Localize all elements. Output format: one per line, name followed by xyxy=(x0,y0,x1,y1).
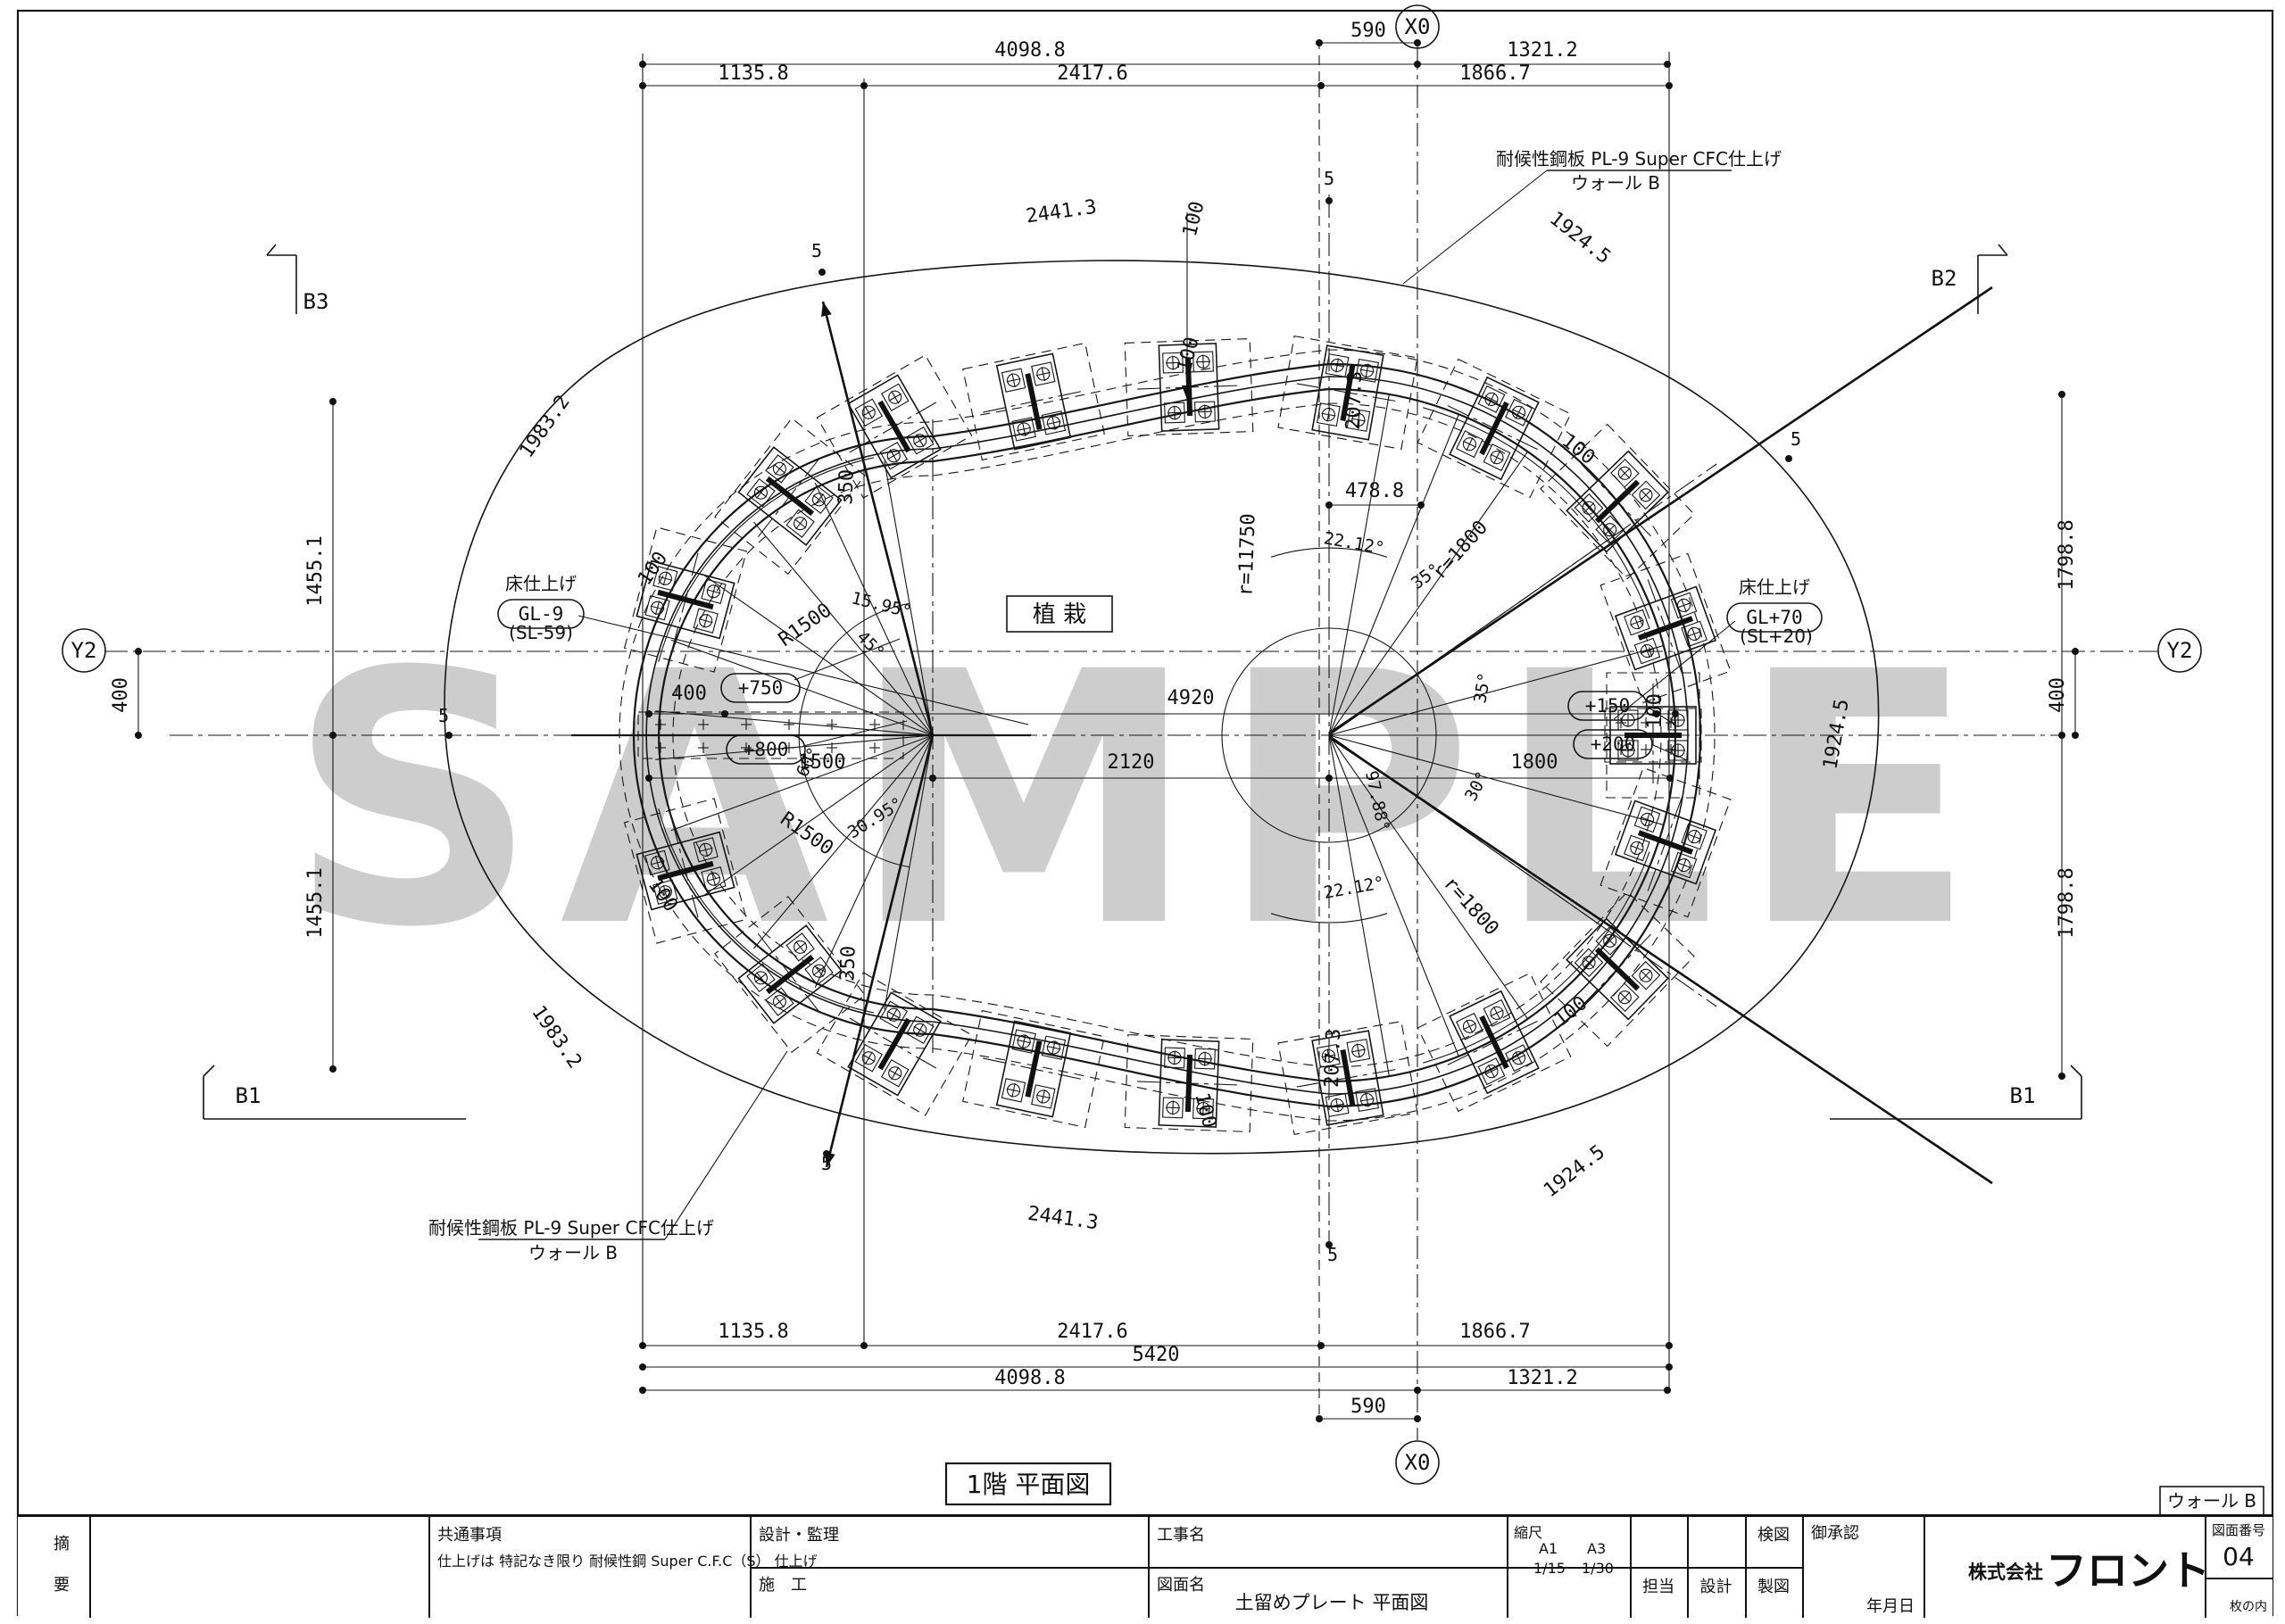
dim-label: 100 xyxy=(1179,199,1209,239)
tb-scale-a1: A1 xyxy=(1539,1540,1558,1557)
dim-tick xyxy=(1414,61,1421,68)
dim-tick xyxy=(1325,775,1333,782)
drawing-sheet: SAMPLE 植 栽 1階 平面図 ウォール B 耐候性鋼板 PL-9 Supe… xyxy=(0,0,2285,1624)
grid-bubble-label: X0 xyxy=(1405,1450,1431,1475)
drawing-line xyxy=(1403,170,1547,284)
svg-text:ウォール B: ウォール B xyxy=(2167,1490,2256,1512)
drawing-title-label: 1階 平面図 xyxy=(946,1463,1110,1504)
dim-tick xyxy=(2072,732,2079,739)
dim-tick xyxy=(639,1387,646,1394)
tb-approval-label: 御承認 xyxy=(1811,1520,1859,1544)
tb-common-title: 共通事項 xyxy=(437,1522,502,1545)
svg-text:耐候性鋼板 PL-9 Super CFC仕上げ: 耐候性鋼板 PL-9 Super CFC仕上げ xyxy=(428,1217,714,1239)
wall-tag-label: ウォール B xyxy=(2160,1487,2264,1515)
dim-tick xyxy=(2058,391,2065,398)
dim-tick xyxy=(2072,648,2079,655)
svg-text:1階 平面図: 1階 平面図 xyxy=(967,1470,1091,1499)
svg-text:ウォール B: ウォール B xyxy=(1571,172,1660,194)
drawing-line xyxy=(1998,244,2007,255)
dim-tick xyxy=(1666,82,1673,89)
cad-drawing-canvas: SAMPLE 植 栽 1階 平面図 ウォール B 耐候性鋼板 PL-9 Supe… xyxy=(0,0,2285,1624)
dim-label: 207.3 xyxy=(1342,370,1367,430)
dim-tick xyxy=(1316,39,1323,46)
tb-design-label: 設計・監理 xyxy=(759,1522,839,1545)
section-marker-label: B1 xyxy=(236,1083,262,1108)
level-value: +150 xyxy=(1585,695,1631,717)
dim-tick xyxy=(645,710,652,717)
dim-tick xyxy=(329,1065,337,1073)
dim-label: 350 xyxy=(835,468,858,505)
retaining-plate xyxy=(1417,360,1570,498)
dim-label: 400 xyxy=(110,677,132,713)
dim-tick xyxy=(929,775,936,782)
section-marker-label: B1 xyxy=(2010,1083,2036,1108)
dim-label: r=11750 xyxy=(1234,513,1259,597)
dim-label: 1983.2 xyxy=(516,392,575,462)
dim-tick xyxy=(2058,1073,2065,1080)
level-value: GL-9 xyxy=(519,603,564,625)
dim-tick xyxy=(1664,61,1671,68)
tb-divider xyxy=(1924,1517,1925,1618)
dim-label: 400 xyxy=(671,683,707,705)
dim-label: 100 xyxy=(1190,1090,1220,1131)
dim-label: 100 xyxy=(1644,693,1666,729)
dim-tick xyxy=(639,1363,646,1371)
dim-tick xyxy=(1316,1415,1323,1422)
retaining-plate xyxy=(963,344,1105,460)
level-value: +800 xyxy=(744,739,789,760)
tb-drawing-number: 04 xyxy=(2205,1542,2273,1571)
tb-divider xyxy=(428,1517,430,1618)
count-tag: 5 xyxy=(1327,1244,1338,1265)
drawing-line xyxy=(267,244,276,255)
dim-tick xyxy=(1666,1342,1673,1349)
dim-tick xyxy=(639,82,646,89)
tb-staff-seizu: 製図 xyxy=(1745,1574,1802,1597)
dim-label: 1983.2 xyxy=(527,1002,586,1073)
dim-tick xyxy=(645,775,652,782)
svg-text:耐候性鋼板 PL-9 Super CFC仕上げ: 耐候性鋼板 PL-9 Super CFC仕上げ xyxy=(1496,148,1782,170)
sample-watermark: SAMPLE xyxy=(287,598,1998,1003)
tb-summary-label: 要 xyxy=(54,1572,70,1595)
dim-tick xyxy=(1785,455,1792,462)
dim-tick xyxy=(1325,197,1333,204)
dim-tick xyxy=(329,732,337,739)
tb-divider xyxy=(89,1517,91,1618)
tb-divider xyxy=(2205,1578,2273,1579)
dim-label: 2417.6 xyxy=(1057,62,1127,85)
dim-label: 2417.6 xyxy=(1057,1321,1127,1343)
dim-tick xyxy=(1414,39,1421,46)
finish-label: (SL-59) xyxy=(509,622,573,643)
dim-label: 1866.7 xyxy=(1459,62,1530,85)
dim-label: 4098.8 xyxy=(994,1367,1065,1389)
tb-scale-a3: A3 xyxy=(1587,1540,1606,1557)
dim-label: 478.8 xyxy=(1345,480,1404,502)
dim-tick xyxy=(1417,501,1425,509)
tb-scale-a3-value: 1/30 xyxy=(1582,1560,1614,1577)
dim-label: 207.3 xyxy=(1321,1028,1345,1088)
level-value: +200 xyxy=(1591,733,1636,755)
dim-tick xyxy=(1414,1415,1421,1422)
dim-tick xyxy=(1666,1363,1673,1371)
dim-label: 4098.8 xyxy=(994,39,1065,62)
dim-label: 1798.8 xyxy=(2056,867,2078,938)
svg-text:植 栽: 植 栽 xyxy=(1033,601,1086,628)
dim-label: 1135.8 xyxy=(718,62,788,85)
tb-scale-a1-value: 1/15 xyxy=(1533,1560,1566,1577)
dim-tick xyxy=(860,1342,868,1349)
dim-tick xyxy=(721,710,728,717)
tb-divider xyxy=(750,1567,1802,1569)
count-tag: 5 xyxy=(811,240,822,261)
dim-tick xyxy=(639,1342,646,1349)
dim-label: 1924.5 xyxy=(1540,1141,1609,1203)
dim-tick xyxy=(1414,1387,1421,1394)
dim-label: 590 xyxy=(1350,1396,1386,1418)
tb-summary-label: 摘 xyxy=(54,1531,70,1554)
drawing-line xyxy=(204,1065,214,1076)
grid-bubble-label: X0 xyxy=(1405,14,1431,39)
drawing-line xyxy=(665,1051,787,1239)
dim-tick xyxy=(135,732,142,739)
dim-label: 1866.7 xyxy=(1459,1321,1530,1343)
dim-label: 5420 xyxy=(1133,1344,1180,1366)
finish-note-bottom-left: 耐候性鋼板 PL-9 Super CFC仕上げ ウォール B xyxy=(428,1217,714,1264)
dim-label: 100 xyxy=(1174,335,1204,375)
tb-scale-label: 縮尺 xyxy=(1514,1520,1542,1542)
finish-label: 床仕上げ xyxy=(1739,576,1810,598)
level-value: +750 xyxy=(738,677,784,699)
dim-label: 1798.8 xyxy=(2056,519,2078,590)
count-tag: 5 xyxy=(1791,428,1801,450)
dim-label: 2441.3 xyxy=(1026,1203,1100,1235)
dim-label: 1800 xyxy=(1511,751,1558,774)
dim-label: 100 xyxy=(634,548,672,590)
dim-tick xyxy=(2058,732,2065,739)
dim-tick xyxy=(445,732,453,739)
count-tag: 5 xyxy=(1324,168,1334,189)
tb-staff-kenzu: 検図 xyxy=(1745,1522,1802,1545)
grid-bubble-label: Y2 xyxy=(2167,638,2193,663)
svg-text:ウォール B: ウォール B xyxy=(528,1242,618,1264)
dim-tick xyxy=(135,648,142,655)
dim-tick xyxy=(1325,501,1333,509)
level-value: GL+70 xyxy=(1746,607,1802,628)
dim-label: 1455.1 xyxy=(304,535,327,606)
dim-label: 2120 xyxy=(1108,751,1155,774)
tb-construction-label: 施 工 xyxy=(759,1572,807,1595)
tb-company-name: フロント xyxy=(2046,1538,2210,1597)
dim-tick xyxy=(818,269,826,276)
finish-label: (SL+20) xyxy=(1740,626,1813,647)
dim-tick xyxy=(1317,82,1325,89)
dim-tick xyxy=(639,61,646,68)
tb-common-note: 仕上げは 特記なき限り 耐候性鋼 Super C.F.C（S） 仕上げ xyxy=(437,1549,818,1570)
tb-staff-tanto: 担当 xyxy=(1630,1574,1687,1597)
tb-drawingno-label: 図面番号 xyxy=(2212,1520,2265,1539)
dim-tick xyxy=(860,82,868,89)
angle-label: 22.12° xyxy=(1322,528,1385,559)
section-marker-label: B3 xyxy=(303,289,329,314)
count-tag: 5 xyxy=(438,705,449,726)
count-tag: 5 xyxy=(821,1153,832,1174)
title-block: 摘 要 共通事項 仕上げは 特記なき限り 耐候性鋼 Super C.F.C（S）… xyxy=(18,1514,2273,1618)
dim-label: 1135.8 xyxy=(718,1321,788,1343)
tb-date-label: 年月日 xyxy=(1830,1594,1915,1617)
dim-label: 400 xyxy=(2047,677,2069,713)
dim-label: 590 xyxy=(1350,20,1386,42)
arrowhead xyxy=(818,301,832,317)
finish-label: 床仕上げ xyxy=(505,573,577,594)
dim-label: 1321.2 xyxy=(1507,1367,1577,1389)
tb-sheetcount-note: 枚の内 xyxy=(2205,1597,2267,1615)
dim-tick xyxy=(1666,775,1674,782)
tb-drawing-name: 土留めプレート 平面図 xyxy=(1157,1588,1507,1615)
grid-bubble-label: Y2 xyxy=(71,638,97,663)
tb-company-prefix: 株式会社 xyxy=(1968,1558,2043,1585)
dim-label: 1321.2 xyxy=(1507,39,1577,62)
dim-label: 1924.5 xyxy=(1545,208,1615,269)
dim-label: 350 xyxy=(836,945,860,982)
dim-label: 4920 xyxy=(1167,687,1215,709)
drawing-line xyxy=(2071,1065,2081,1076)
section-marker-label: B2 xyxy=(1932,266,1957,291)
retaining-plate xyxy=(963,1011,1105,1128)
dim-tick xyxy=(1664,1387,1671,1394)
dim-label: 2441.3 xyxy=(1025,196,1098,228)
dim-tick xyxy=(329,398,337,405)
dim-tick xyxy=(1317,1342,1325,1349)
tb-staff-sekkei: 設計 xyxy=(1687,1574,1745,1597)
tb-project-label: 工事名 xyxy=(1157,1522,1205,1545)
tb-divider xyxy=(1802,1517,1804,1618)
dim-label: 1455.1 xyxy=(304,867,327,938)
